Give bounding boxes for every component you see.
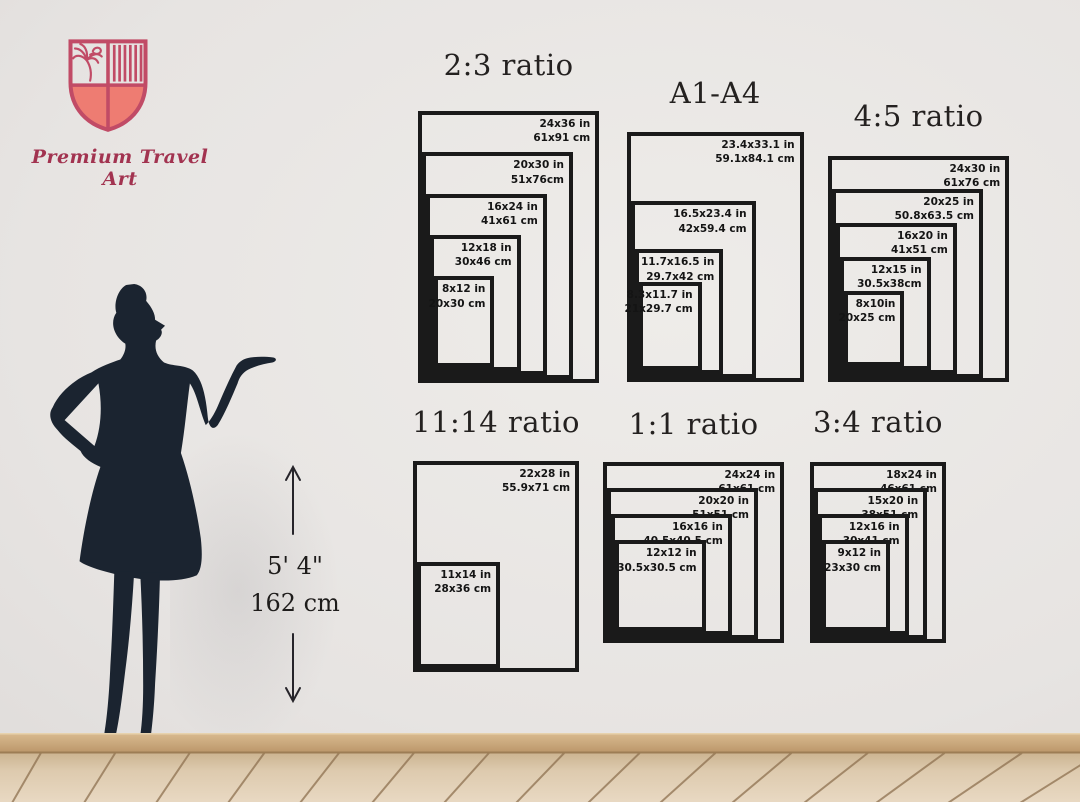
- woman-silhouette: [30, 278, 310, 775]
- height-imperial: 5' 4": [243, 552, 347, 581]
- size-inches: 24x30 in: [943, 162, 1000, 176]
- size-cm: 42x59.4 cm: [673, 222, 746, 236]
- size-cm: 20x25 cm: [839, 311, 896, 325]
- size-label: 16x20 in41x51 cm: [891, 229, 948, 257]
- size-box: 24x36 in61x91 cm20x30 in51x76cm16x24 in4…: [418, 111, 599, 383]
- size-inches: 15x20 in: [861, 494, 918, 508]
- size-inches: 16x20 in: [891, 229, 948, 243]
- size-box: 12x16 in30x41 cm9x12 in23x30 cm: [818, 514, 909, 635]
- size-inches: 12x16 in: [843, 520, 900, 534]
- size-box: 16x20 in41x51 cm12x15 in30.5x38cm8x10in2…: [836, 223, 957, 374]
- size-label: 24x36 in61x91 cm: [533, 117, 590, 145]
- size-box: 9x12 in23x30 cm: [822, 540, 890, 631]
- poster-size-guide: Premium Travel Art 5' 4" 162 cm 2:3 rati…: [0, 0, 1080, 802]
- size-inches: 24x24 in: [718, 468, 775, 482]
- wood-floor: [0, 733, 1080, 802]
- size-inches: 12x12 in: [617, 546, 696, 560]
- size-inches: 20x30 in: [511, 158, 564, 172]
- size-box: 16.5x23.4 in42x59.4 cm11.7x16.5 in29.7x4…: [631, 201, 756, 378]
- size-inches: 20x20 in: [692, 494, 749, 508]
- size-inches: 24x36 in: [533, 117, 590, 131]
- size-label: 12x12 in30.5x30.5 cm: [617, 546, 696, 574]
- size-label: 11x14 in28x36 cm: [434, 568, 491, 596]
- size-cm: 30.5x38cm: [857, 277, 921, 291]
- size-inches: 8x12 in: [429, 282, 486, 296]
- chart-title: A1-A4: [670, 76, 761, 110]
- size-box: 20x25 in50.8x63.5 cm16x20 in41x51 cm12x1…: [832, 189, 983, 378]
- baseboard: [0, 733, 1080, 753]
- brand-name: Premium Travel Art: [20, 146, 220, 190]
- size-label: 8x10in20x25 cm: [839, 297, 896, 325]
- size-cm: 20x30 cm: [429, 297, 486, 311]
- size-inches: 8.3x11.7 in: [625, 288, 693, 302]
- size-inches: 12x15 in: [857, 263, 921, 277]
- size-inches: 9x12 in: [824, 546, 881, 560]
- size-cm: 61x91 cm: [533, 131, 590, 145]
- size-box: 24x30 in61x76 cm20x25 in50.8x63.5 cm16x2…: [828, 156, 1009, 383]
- size-inches: 20x25 in: [895, 195, 974, 209]
- size-box: 23.4x33.1 in59.1x84.1 cm16.5x23.4 in42x5…: [627, 132, 804, 382]
- size-inches: 11.7x16.5 in: [641, 255, 714, 269]
- size-cm: 23x30 cm: [824, 561, 881, 575]
- size-label: 8x12 in20x30 cm: [429, 282, 486, 310]
- size-label: 20x25 in50.8x63.5 cm: [895, 195, 974, 223]
- size-label: 16.5x23.4 in42x59.4 cm: [673, 207, 746, 235]
- size-label: 23.4x33.1 in59.1x84.1 cm: [715, 138, 794, 166]
- size-cm: 59.1x84.1 cm: [715, 152, 794, 166]
- size-box: 8.3x11.7 in21x29.7 cm: [639, 282, 702, 370]
- size-box: 20x30 in51x76cm16x24 in41x61 cm12x18 in3…: [422, 152, 573, 379]
- size-label: 12x18 in30x46 cm: [455, 241, 512, 269]
- size-cm: 50.8x63.5 cm: [895, 209, 974, 223]
- shield-logo-icon: [62, 36, 154, 136]
- size-box: 20x20 in51x51 cm16x16 in40.5x40.5 cm12x1…: [607, 488, 758, 639]
- size-label: 12x15 in30.5x38cm: [857, 263, 921, 291]
- size-label: 8.3x11.7 in21x29.7 cm: [625, 288, 693, 316]
- chart-title: 3:4 ratio: [813, 405, 943, 439]
- size-inches: 16x16 in: [643, 520, 722, 534]
- size-inches: 23.4x33.1 in: [715, 138, 794, 152]
- size-box: 24x24 in61x61 cm20x20 in51x51 cm16x16 in…: [603, 462, 784, 643]
- size-box: 15x20 in38x51 cm12x16 in30x41 cm9x12 in2…: [814, 488, 927, 639]
- size-inches: 12x18 in: [455, 241, 512, 255]
- height-metric: 162 cm: [243, 589, 347, 618]
- size-box: 12x12 in30.5x30.5 cm: [615, 540, 706, 631]
- chart-title: 11:14 ratio: [412, 405, 580, 439]
- size-box: 18x24 in46x61 cm15x20 in38x51 cm12x16 in…: [810, 462, 946, 643]
- size-inches: 22x28 in: [502, 467, 570, 481]
- size-label: 24x30 in61x76 cm: [943, 162, 1000, 190]
- size-box: 11x14 in28x36 cm: [417, 562, 500, 668]
- size-cm: 30.5x30.5 cm: [617, 561, 696, 575]
- height-up-arrow-icon: [275, 460, 311, 538]
- height-label: 5' 4" 162 cm: [243, 552, 347, 618]
- size-box: 11.7x16.5 in29.7x42 cm8.3x11.7 in21x29.7…: [635, 249, 723, 374]
- size-box: 16x16 in40.5x40.5 cm12x12 in30.5x30.5 cm: [611, 514, 732, 635]
- size-label: 11.7x16.5 in29.7x42 cm: [641, 255, 714, 283]
- size-cm: 21x29.7 cm: [625, 302, 693, 316]
- size-box: 8x12 in20x30 cm: [434, 276, 494, 367]
- size-cm: 55.9x71 cm: [502, 481, 570, 495]
- size-box: 16x24 in41x61 cm12x18 in30x46 cm8x12 in2…: [426, 194, 547, 375]
- chart-title: 4:5 ratio: [854, 99, 984, 133]
- size-inches: 16x24 in: [481, 200, 538, 214]
- size-box: 12x18 in30x46 cm8x12 in20x30 cm: [430, 235, 521, 371]
- size-box: 8x10in20x25 cm: [844, 291, 904, 367]
- size-inches: 16.5x23.4 in: [673, 207, 746, 221]
- size-box: 22x28 in55.9x71 cm11x14 in28x36 cm: [413, 461, 579, 672]
- chart-title: 1:1 ratio: [629, 407, 759, 441]
- size-inches: 18x24 in: [880, 468, 937, 482]
- size-cm: 61x76 cm: [943, 176, 1000, 190]
- size-label: 20x30 in51x76cm: [511, 158, 564, 186]
- size-label: 9x12 in23x30 cm: [824, 546, 881, 574]
- size-cm: 41x51 cm: [891, 243, 948, 257]
- size-cm: 28x36 cm: [434, 582, 491, 596]
- size-label: 16x24 in41x61 cm: [481, 200, 538, 228]
- size-cm: 51x76cm: [511, 173, 564, 187]
- palm-bird-quadrant: [73, 44, 102, 81]
- chart-title: 2:3 ratio: [444, 48, 574, 82]
- size-box: 12x15 in30.5x38cm8x10in20x25 cm: [840, 257, 931, 370]
- height-down-arrow-icon: [275, 630, 311, 708]
- size-cm: 41x61 cm: [481, 214, 538, 228]
- stripes-quadrant: [114, 45, 141, 82]
- size-label: 22x28 in55.9x71 cm: [502, 467, 570, 495]
- size-cm: 30x46 cm: [455, 255, 512, 269]
- size-inches: 8x10in: [839, 297, 896, 311]
- size-inches: 11x14 in: [434, 568, 491, 582]
